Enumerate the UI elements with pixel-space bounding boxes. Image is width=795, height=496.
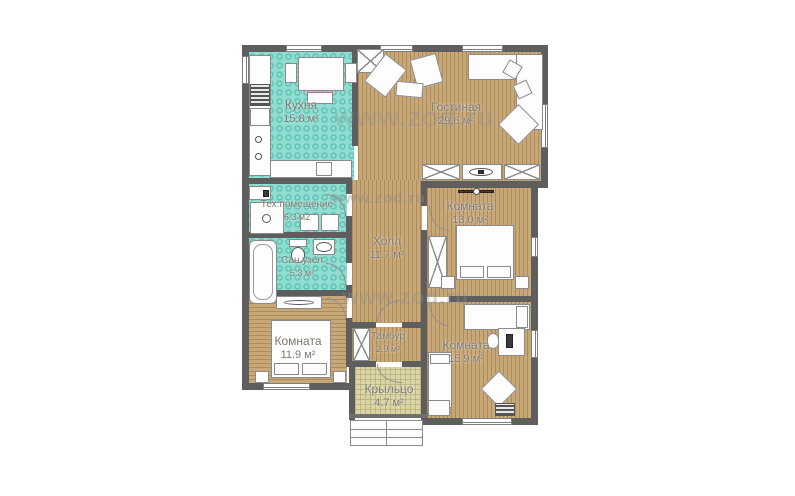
burner xyxy=(255,153,262,160)
toilet-tank xyxy=(289,239,307,247)
wall xyxy=(402,361,427,367)
pillow xyxy=(274,363,299,375)
wall xyxy=(421,181,541,188)
room-label-tambour: Тамбур 2.9 м² xyxy=(371,331,405,355)
cabinet xyxy=(504,164,540,180)
kitchen-appliance xyxy=(316,162,332,176)
wall xyxy=(402,322,427,328)
room-name: Сан.узел xyxy=(281,255,323,268)
tv xyxy=(284,300,314,305)
room-area: 6.3 м2 xyxy=(261,212,333,223)
nightstand xyxy=(333,371,346,383)
bathtub-inner xyxy=(253,244,273,300)
window xyxy=(462,418,512,425)
room-label-bedroom3: Комната 15.9 м² xyxy=(443,338,490,367)
porch-edge xyxy=(349,414,428,418)
room-name: Комната xyxy=(443,338,490,353)
window xyxy=(286,45,322,52)
wall xyxy=(242,178,352,184)
stove xyxy=(250,84,270,106)
pillow xyxy=(516,306,528,328)
wall xyxy=(349,367,355,420)
washing-machine-door xyxy=(263,190,269,197)
bathroom-sink-basin xyxy=(316,242,332,252)
chair xyxy=(345,63,357,83)
watermark: www.zod.ru xyxy=(334,102,495,133)
tv xyxy=(495,403,515,416)
pillow xyxy=(487,266,511,278)
dining-table xyxy=(298,57,344,91)
kitchen-counter xyxy=(270,160,352,178)
room-area: 15.9 м² xyxy=(443,353,490,367)
wall xyxy=(242,45,249,390)
coffee-table xyxy=(395,81,423,98)
room-label-porch: Крыльцо 4.7 м² xyxy=(365,382,414,411)
pillow xyxy=(460,266,484,278)
cabinet xyxy=(422,164,460,180)
wall xyxy=(346,216,352,263)
window xyxy=(242,56,249,84)
porch-step-divider xyxy=(386,420,387,446)
chair xyxy=(285,63,297,83)
room-area: 15.8 м² xyxy=(283,113,319,127)
window xyxy=(531,237,538,257)
room-label-bedroom1: Комната 13.0 м² xyxy=(447,199,494,228)
room-label-bedroom2: Комната 11.9 м² xyxy=(275,334,322,363)
room-label-bath: Сан.узел 6.3 м² xyxy=(281,255,323,279)
radiator-valve xyxy=(473,188,480,195)
room-area: 11.9 м² xyxy=(275,349,322,363)
watermark: www.zod.ru xyxy=(332,190,426,207)
wall xyxy=(531,181,538,425)
pillow xyxy=(302,363,327,375)
room-area: 11.7 м² xyxy=(370,249,405,263)
window xyxy=(531,330,538,358)
wardrobe xyxy=(353,328,370,361)
room-name: Комната xyxy=(275,334,322,349)
tv xyxy=(478,170,484,174)
room-name: Тех.помещение xyxy=(261,199,333,212)
room-label-kitchen: Кухня 15.8 м² xyxy=(283,98,319,127)
room-name: Холл xyxy=(370,234,405,249)
computer xyxy=(506,334,513,348)
floor-plan: Кухня 15.8 м² Гостиная 29.8 м² Тех.помещ… xyxy=(0,0,795,496)
window xyxy=(263,383,310,390)
room-label-tech: Тех.помещение 6.3 м2 xyxy=(261,199,333,223)
nightstand xyxy=(255,371,269,383)
room-name: Тамбур xyxy=(371,331,405,344)
room-name: Кухня xyxy=(283,98,319,113)
room-area: 2.9 м² xyxy=(371,344,405,355)
room-area: 6.3 м² xyxy=(281,268,323,279)
room-name: Крыльцо xyxy=(365,382,414,397)
room-area: 13.0 м² xyxy=(447,214,494,228)
room-area: 4.7 м² xyxy=(365,397,414,411)
nightstand xyxy=(515,276,529,289)
watermark: www.zod.ru xyxy=(342,286,469,310)
window xyxy=(380,45,413,52)
room-label-hall: Холл 11.7 м² xyxy=(370,234,405,263)
kitchen-sink xyxy=(250,108,270,126)
window xyxy=(462,45,503,52)
room-name: Комната xyxy=(447,199,494,214)
burner xyxy=(255,136,262,143)
nightstand xyxy=(428,400,450,416)
